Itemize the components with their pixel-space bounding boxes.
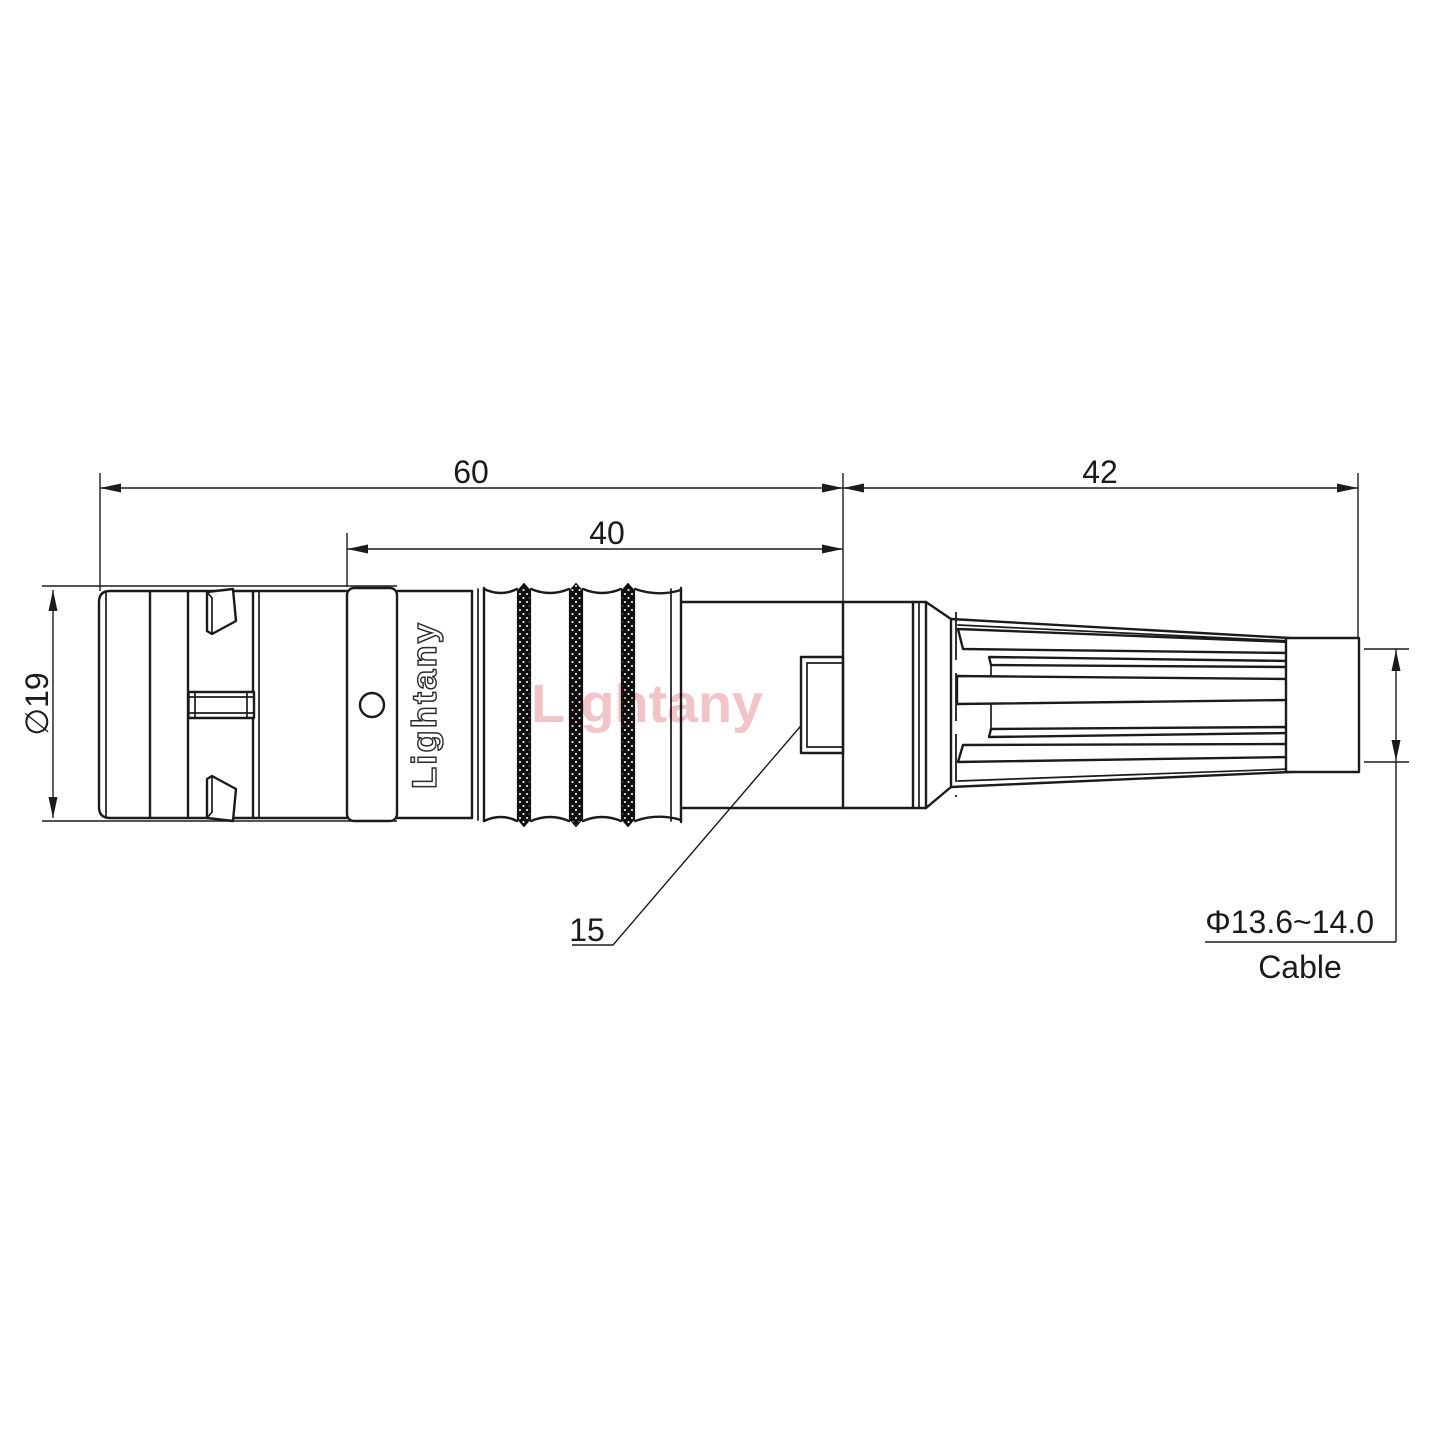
ring-outline xyxy=(347,588,397,821)
dim-15-label: 15 xyxy=(569,912,605,948)
arrowhead-left xyxy=(843,484,864,493)
locking-ring xyxy=(347,588,397,821)
nut-window-slot xyxy=(189,692,255,718)
arrowhead-right xyxy=(822,545,843,554)
boot-tip xyxy=(1286,638,1359,772)
boot-fins xyxy=(957,629,1290,762)
connector-technical-drawing: 60 42 40 ∅19 15 Φ13.6~14.0 Cabl xyxy=(0,0,1440,1440)
coupling-nut xyxy=(99,589,347,821)
dim-40-label: 40 xyxy=(589,515,625,551)
arrowhead-left xyxy=(347,545,368,554)
boot-fin-slat xyxy=(989,727,1290,737)
boot-fin-slat xyxy=(989,657,1290,667)
connector-body: Lightany xyxy=(99,584,1359,827)
cable-label: Cable xyxy=(1258,949,1342,985)
arrowhead-left xyxy=(100,484,121,493)
boot-fin-slat xyxy=(958,744,1290,762)
arrowhead-down xyxy=(1392,740,1401,761)
arrowhead-up xyxy=(49,590,58,611)
dim-42-label: 42 xyxy=(1082,454,1118,490)
watermark-text: Lightany xyxy=(531,674,763,734)
leader-line xyxy=(572,707,817,945)
bayonet-key-bottom xyxy=(207,776,236,821)
technical-drawing-page: 60 42 40 ∅19 15 Φ13.6~14.0 Cabl xyxy=(0,0,1440,1440)
cable-boot xyxy=(926,602,1359,808)
dimension-60-overall: 60 xyxy=(100,454,843,601)
clamp-window xyxy=(801,657,843,753)
dimension-42-boot: 42 xyxy=(843,454,1358,637)
arrowhead-right xyxy=(1337,484,1358,493)
dim-diameter-label: ∅19 xyxy=(19,672,55,735)
arrowhead-up xyxy=(1392,650,1401,671)
knurl-band xyxy=(518,584,531,827)
logo-text: Lightany xyxy=(406,621,444,789)
logo-barrel: Lightany xyxy=(397,588,484,821)
back-shell xyxy=(843,602,926,808)
bayonet-key-top xyxy=(207,589,236,634)
boot-collar xyxy=(926,602,951,808)
leader-15-clamp: 15 xyxy=(569,703,821,949)
dim-60-label: 60 xyxy=(453,454,489,490)
slot-outline xyxy=(189,692,255,718)
arrowhead-down xyxy=(49,797,58,818)
cable-diameter-label: Φ13.6~14.0 xyxy=(1205,904,1374,940)
boot-fin-slat xyxy=(957,676,1290,704)
dimension-40-body: 40 xyxy=(347,515,843,587)
arrowhead-right xyxy=(822,484,843,493)
